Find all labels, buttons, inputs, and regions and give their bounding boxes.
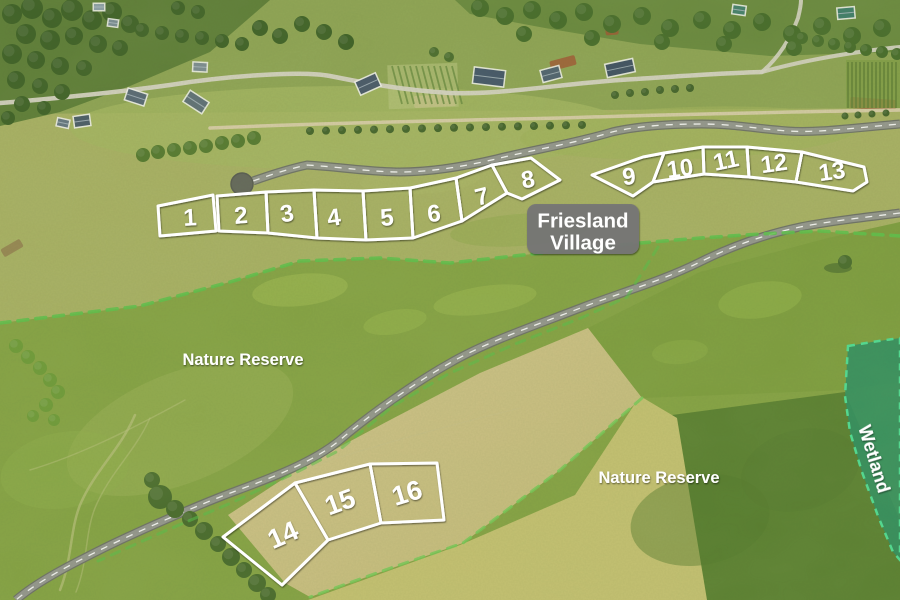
- plot-1-number: 1: [183, 204, 198, 232]
- plot-10-number: 10: [665, 154, 695, 184]
- plot-9-number: 9: [621, 163, 637, 191]
- plot-2-number: 2: [233, 202, 249, 230]
- grain-overlay: [0, 0, 900, 600]
- plot-12-number: 12: [759, 149, 789, 179]
- plot-13-number: 13: [817, 157, 847, 187]
- village-label: Friesland Village: [527, 204, 639, 255]
- plot-5-number: 5: [379, 204, 395, 232]
- plot-6-number: 6: [426, 200, 442, 228]
- aerial-plot-map: 12345678910111213141516 Friesland Villag…: [0, 0, 900, 600]
- nature-reserve-label-east: Nature Reserve: [598, 469, 719, 487]
- village-label-line1: Friesland: [537, 210, 628, 233]
- nature-reserve-label-west: Nature Reserve: [182, 351, 303, 369]
- aerial-photo-canvas: 12345678910111213141516 Friesland Villag…: [0, 0, 900, 600]
- village-label-line2: Village: [550, 232, 616, 255]
